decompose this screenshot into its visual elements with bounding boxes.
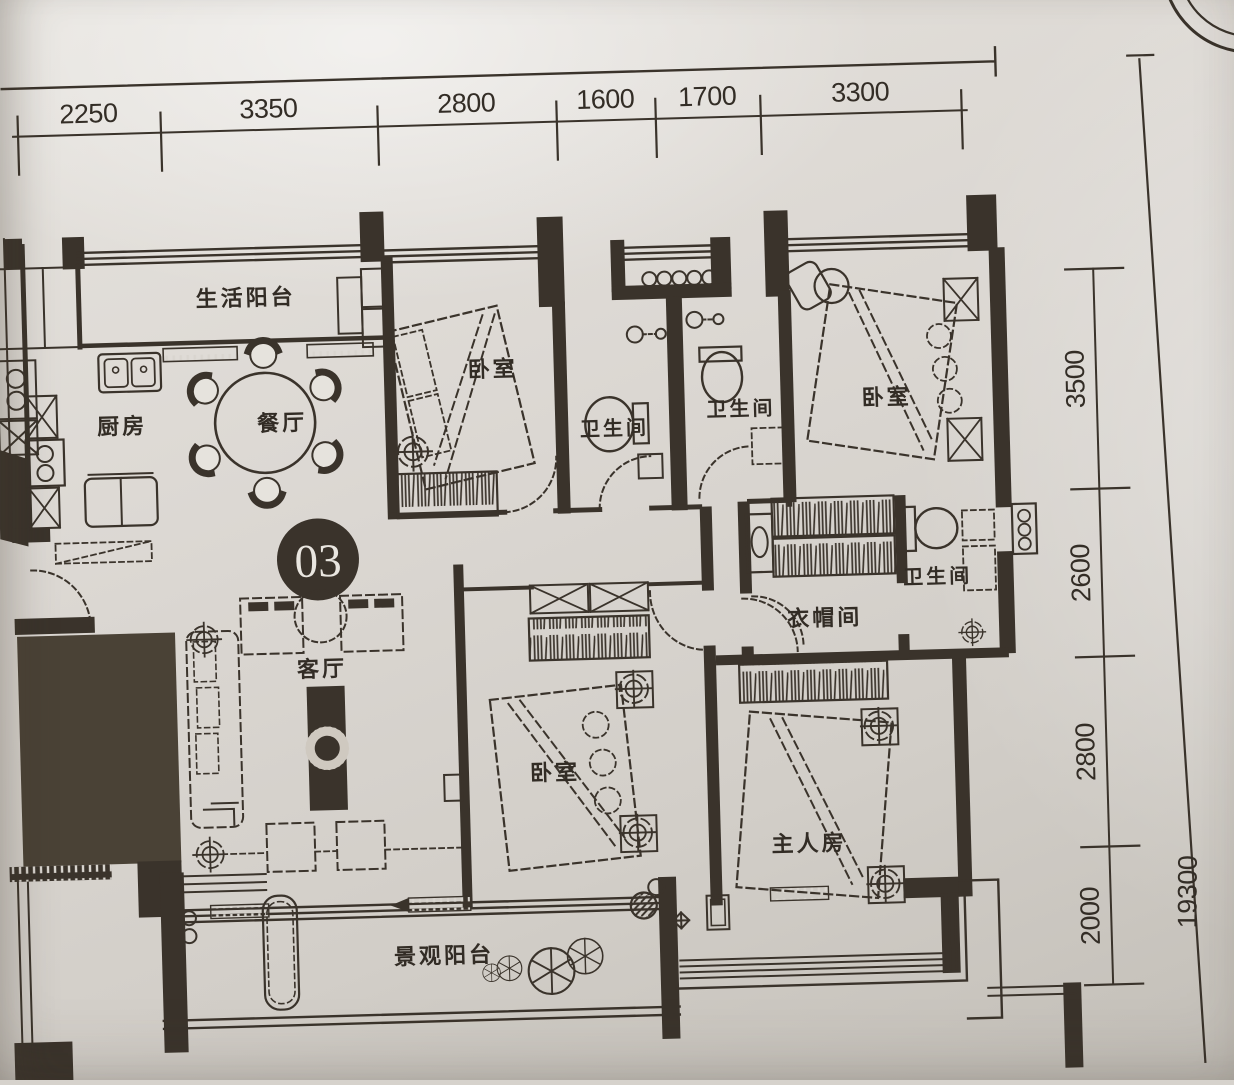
kitchen-fixtures bbox=[23, 353, 168, 629]
unit-badge-number: 03 bbox=[294, 535, 342, 588]
room-label-bath-2: 卫生间 bbox=[706, 397, 776, 422]
room-label-master-bedroom: 主人房 bbox=[771, 830, 847, 857]
bedroom-top-left bbox=[387, 304, 558, 518]
bathroom-1 bbox=[581, 270, 723, 510]
dimension-chain-top: 2250 3350 2800 1600 1700 3300 bbox=[1, 47, 997, 175]
dim-top-5: 1700 bbox=[678, 81, 737, 113]
floorplan-drawing: 2250 3350 2800 1600 1700 3300 3500 2600 … bbox=[0, 0, 1234, 1080]
room-label-bedroom-top-left: 卧室 bbox=[467, 356, 518, 382]
master-bedroom-furniture bbox=[728, 594, 904, 907]
dimension-chain-right: 3500 2600 2800 2000 19300 bbox=[1051, 54, 1208, 1065]
room-label-view-balcony: 景观阳台 bbox=[394, 942, 495, 970]
room-label-service-balcony: 生活阳台 bbox=[195, 284, 296, 312]
page-corner-ornament bbox=[1160, 0, 1234, 55]
room-label-kitchen: 厨房 bbox=[97, 413, 148, 439]
unit-badge: 03 bbox=[276, 517, 360, 601]
room-label-bedroom-bottom: 卧室 bbox=[530, 759, 581, 785]
dim-top-2: 3350 bbox=[239, 93, 298, 125]
bedroom-bottom bbox=[487, 581, 710, 871]
dim-top-6: 3300 bbox=[831, 76, 890, 108]
dim-right-1: 3500 bbox=[1059, 350, 1091, 409]
room-label-living: 客厅 bbox=[297, 656, 348, 682]
bedroom-top-right bbox=[783, 254, 983, 465]
dim-right-total: 19300 bbox=[1172, 856, 1203, 929]
room-label-bath-master: 卫生间 bbox=[903, 564, 973, 589]
room-label-bedroom-top-right: 卧室 bbox=[861, 384, 912, 410]
dim-right-2: 2600 bbox=[1065, 544, 1097, 603]
dim-top-3: 2800 bbox=[437, 87, 496, 119]
room-label-dining: 餐厅 bbox=[257, 410, 308, 436]
dim-top-1: 2250 bbox=[59, 98, 118, 130]
living-room-furniture bbox=[185, 587, 465, 874]
dim-top-4: 1600 bbox=[576, 83, 635, 115]
room-label-closet: 衣帽间 bbox=[787, 604, 863, 631]
dim-right-4: 2000 bbox=[1074, 887, 1106, 946]
room-label-bath-1: 卫生间 bbox=[580, 416, 650, 441]
floorplan-photo: 2250 3350 2800 1600 1700 3300 3500 2600 … bbox=[0, 0, 1234, 1080]
dim-right-3: 2800 bbox=[1070, 723, 1102, 782]
